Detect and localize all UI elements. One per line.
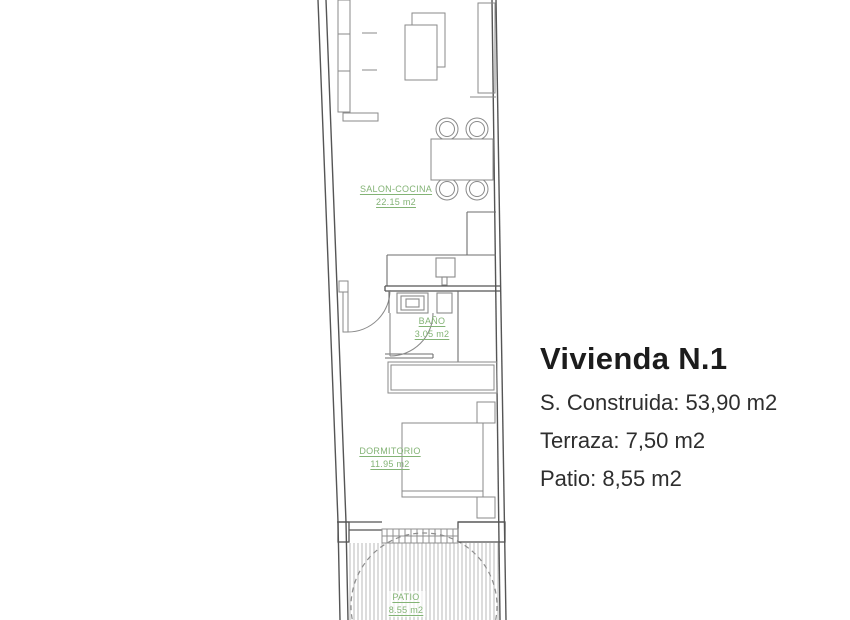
door-swing-arc [348,290,390,332]
utility-strip [387,212,496,286]
armchairs [405,13,445,80]
page: SALON-COCINA 22.15 m2 BAÑO 3.05 m2 DORMI… [0,0,850,620]
hall-wall [385,286,500,291]
room-area: 8.55 m2 [387,604,426,617]
room-name: DORMITORIO [359,445,420,458]
room-name: SALON-COCINA [360,183,432,196]
toilet [437,293,452,313]
built-area-line: S. Construida: 53,90 m2 [540,390,777,416]
room-label-dormitorio: DORMITORIO 11.95 m2 [359,445,420,471]
bottom-wall-sliding-door [337,522,505,543]
dining-table-set [431,118,493,200]
nightstand-bottom [477,497,495,518]
room-label-salon-cocina: SALON-COCINA 22.15 m2 [360,183,432,209]
sink-basin [401,296,424,310]
nightstand-top [477,402,495,423]
dwelling-info: Vivienda N.1 S. Construida: 53,90 m2 Ter… [540,341,777,504]
room-name: PATIO [387,591,426,604]
room-name: BAÑO [415,315,450,328]
room-label-bano: BAÑO 3.05 m2 [415,315,450,341]
kitchen-counter [338,0,378,121]
sink-inner [406,299,419,307]
door-leaf [343,292,348,332]
room-area: 11.95 m2 [359,458,420,471]
floor-plan [0,0,850,620]
room-area: 22.15 m2 [360,196,432,209]
room-area: 3.05 m2 [415,328,450,341]
hall-door [339,281,390,332]
patio-area-line: Patio: 8,55 m2 [540,466,777,492]
dwelling-title: Vivienda N.1 [540,341,777,377]
terrace-area-line: Terraza: 7,50 m2 [540,428,777,454]
room-label-patio: PATIO 8.55 m2 [387,591,426,617]
door-jamb [339,281,348,292]
wardrobe [388,362,497,393]
